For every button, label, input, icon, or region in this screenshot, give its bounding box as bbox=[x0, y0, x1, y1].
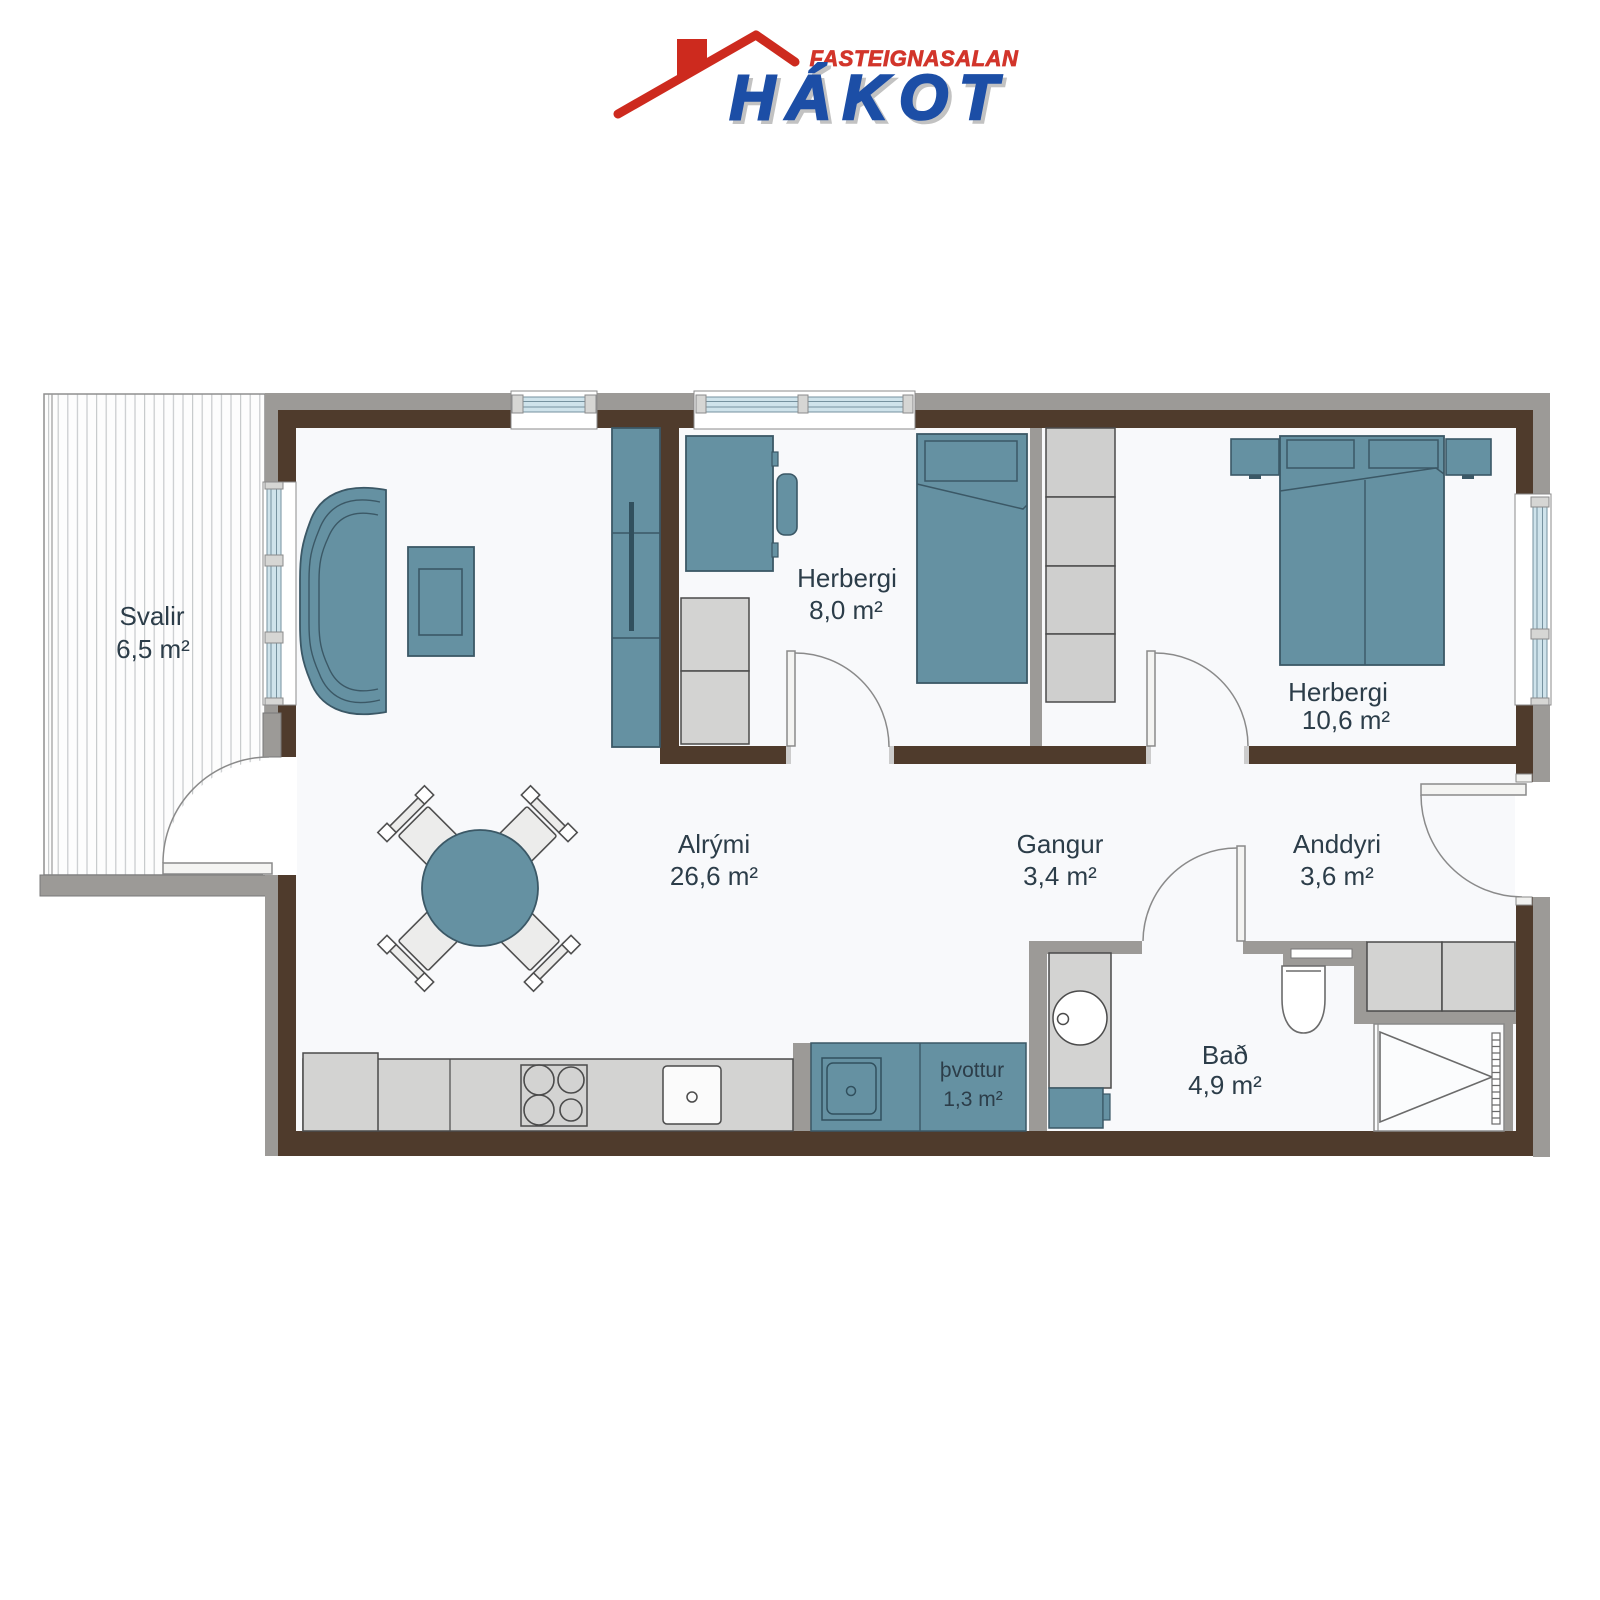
svg-text:8,0 m²: 8,0 m² bbox=[809, 595, 883, 625]
svg-text:26,6 m²: 26,6 m² bbox=[670, 861, 758, 891]
svg-text:Svalir: Svalir bbox=[119, 601, 184, 631]
svg-text:Anddyri: Anddyri bbox=[1293, 829, 1381, 859]
svg-text:HÁKOT: HÁKOT bbox=[730, 63, 1009, 133]
svg-text:Bað: Bað bbox=[1202, 1040, 1248, 1070]
svg-text:3,4 m²: 3,4 m² bbox=[1023, 861, 1097, 891]
svg-text:4,9 m²: 4,9 m² bbox=[1188, 1070, 1262, 1100]
svg-text:Gangur: Gangur bbox=[1017, 829, 1104, 859]
svg-text:Herbergi: Herbergi bbox=[797, 563, 897, 593]
svg-text:6,5 m²: 6,5 m² bbox=[116, 634, 190, 664]
svg-text:Alrými: Alrými bbox=[678, 829, 750, 859]
svg-text:þvottur: þvottur bbox=[940, 1059, 1004, 1082]
svg-text:3,6 m²: 3,6 m² bbox=[1300, 861, 1374, 891]
svg-text:Herbergi: Herbergi bbox=[1288, 677, 1388, 707]
svg-text:10,6 m²: 10,6 m² bbox=[1302, 705, 1390, 735]
svg-text:1,3 m²: 1,3 m² bbox=[943, 1088, 1003, 1111]
